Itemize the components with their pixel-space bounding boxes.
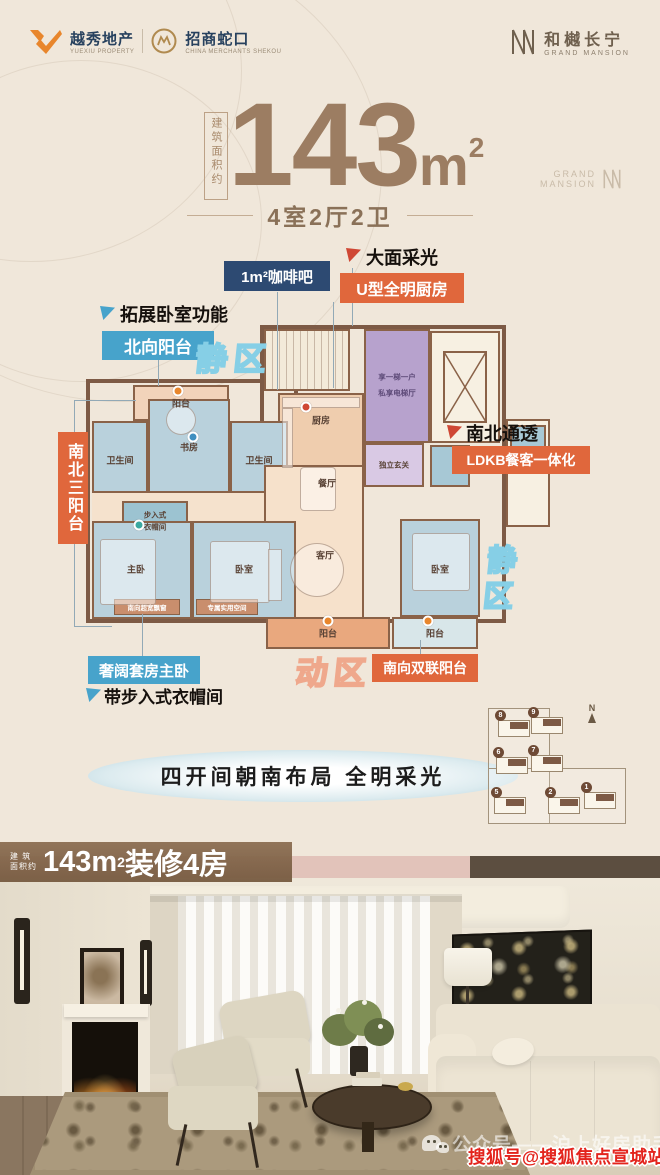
room-label-foyer: 独立玄关 <box>379 460 409 471</box>
zone-quiet-right: 静区 <box>470 544 522 616</box>
callout-north-south: 南北通透 <box>466 420 538 446</box>
window-note-left: 南向超宽飘窗 <box>128 602 167 612</box>
room-label-closet-1: 步入式 <box>144 510 167 521</box>
room-label-balcony-br: 阳台 <box>426 627 444 640</box>
lamp-shade <box>444 948 492 986</box>
banner-prefix: 建 筑 面积约 <box>10 852 37 872</box>
leader-line <box>158 360 159 386</box>
building-1: 1 <box>584 792 616 809</box>
room-label-study: 书房 <box>180 441 198 454</box>
leader-line <box>74 400 75 434</box>
marker-dot <box>188 432 199 443</box>
building-number: 7 <box>528 745 539 756</box>
layout-line-left <box>187 215 253 216</box>
yuexiu-logo-icon <box>28 26 62 56</box>
building-9: 9 <box>531 717 563 734</box>
room-label-balcony-bc: 阳台 <box>319 627 337 640</box>
study-table <box>166 405 196 435</box>
cushion-seam <box>594 1061 595 1141</box>
room-label-bath-mid: 卫生间 <box>245 454 272 467</box>
callout-master-suite: 奢阔套房主卧 <box>88 656 200 684</box>
banner-suffix: 装修4房 <box>125 841 228 883</box>
layout-text: 4室2厅2卫 <box>267 198 392 232</box>
building-8: 8 <box>498 720 530 737</box>
building-6: 6 <box>496 757 528 774</box>
building-5: 5 <box>494 797 526 814</box>
room-label-elevator-1: 享一梯一户 <box>378 372 416 383</box>
leader-line <box>74 626 112 627</box>
leader-line <box>74 544 75 626</box>
leader-line <box>142 614 143 658</box>
slogan-text: 四开间朝南布局 全明采光 <box>161 761 446 791</box>
area-label-box: 建筑面积约 <box>204 112 228 200</box>
kitchen-counter <box>282 397 360 408</box>
building-number: 6 <box>493 747 504 758</box>
layout-line-right <box>407 215 473 216</box>
interior-photo: 公众号——沪上好房助手 搜狐号@搜狐焦点宣城站 <box>0 856 660 1175</box>
building-number: 2 <box>545 787 556 798</box>
hero-watermark-line2: MANSION <box>540 179 596 189</box>
callout-walk-in-closet: 带步入式衣帽间 <box>104 683 223 708</box>
banner-power: 2 <box>117 854 125 870</box>
room-label-master: 主卧 <box>127 563 145 576</box>
table-books <box>356 1072 380 1078</box>
marker-dot <box>423 616 434 627</box>
elevator-icon <box>443 351 487 423</box>
slogan-oval: 四开间朝南布局 全明采光 <box>88 750 518 802</box>
callout-big-light: 大面采光 <box>366 244 438 270</box>
marker-dot <box>323 616 334 627</box>
room-label-living: 客厅 <box>316 549 334 562</box>
fireplace-mantel <box>64 1004 148 1017</box>
building-2: 2 <box>548 797 580 814</box>
room-label-bedroom-left: 卧室 <box>235 563 253 576</box>
building-roof <box>596 794 614 801</box>
plant-flower <box>336 1008 341 1013</box>
callout-u-kitchen: U型全明厨房 <box>340 273 464 303</box>
area-value: 143m2 <box>228 86 484 204</box>
room-label-closet-2: 衣帽间 <box>144 522 167 533</box>
building-7: 7 <box>531 755 563 772</box>
compass-north: N <box>588 703 596 723</box>
drape-left <box>148 896 178 1074</box>
leader-line <box>277 292 278 390</box>
room-label-kitchen: 厨房 <box>312 414 330 427</box>
sconce-light <box>20 930 24 990</box>
callout-coffee-bar: 1m²咖啡吧 <box>224 261 330 291</box>
area-power: 2 <box>469 132 485 163</box>
north-arrow-icon <box>588 713 596 723</box>
framed-picture <box>80 948 124 1010</box>
banner-prefix-line1: 建 筑 <box>10 852 37 862</box>
hero-watermark: GRAND MANSION <box>540 168 622 190</box>
cmsk-sub: CHINA MERCHANTS SHEKOU <box>185 49 281 55</box>
cushion-seam <box>530 1061 531 1141</box>
building-roof <box>560 799 578 806</box>
plant-flower <box>362 1000 367 1005</box>
table-pedestal <box>362 1122 374 1152</box>
building-number: 1 <box>581 782 592 793</box>
room-label-elevator-2: 私享电梯厅 <box>378 388 416 399</box>
picture-art <box>84 952 120 1006</box>
callout-expand-bedroom: 拓展卧室功能 <box>120 301 228 327</box>
header-left-logos: 越秀地产 YUEXIU PROPERTY 招商蛇口 CHINA MERCHANT… <box>28 26 281 56</box>
wechat-icon <box>422 1134 452 1158</box>
wechat-bubble-small <box>436 1142 449 1153</box>
window-note-right: 专属实用空间 <box>208 602 247 612</box>
building-number: 5 <box>491 787 502 798</box>
building-roof <box>508 759 526 766</box>
hero-watermark-line1: GRAND <box>540 169 596 179</box>
callout-south-balconies: 南向双联阳台 <box>372 654 478 682</box>
hero-watermark-text: GRAND MANSION <box>540 169 596 189</box>
header-brand-logo: 和樾长宁 GRAND MANSION <box>510 26 630 57</box>
area-unit: m <box>419 134 469 197</box>
flag-icon <box>86 688 101 702</box>
plant-leaves <box>364 1018 394 1046</box>
marker-dot <box>134 520 145 531</box>
photo-top-shadow <box>470 856 660 878</box>
brand-sub: GRAND MANSION <box>544 50 630 57</box>
leader-line <box>333 302 334 388</box>
sconce-light <box>144 950 147 994</box>
building-roof <box>506 799 524 806</box>
room-label-balcony-top: 阳台 <box>172 397 190 410</box>
yuexiu-name: 越秀地产 <box>70 28 134 49</box>
room-label-bath-left: 卫生间 <box>106 454 133 467</box>
zone-quiet-top: 静区 <box>194 334 275 380</box>
wall-sconce-left <box>14 918 30 1004</box>
armchair-seat-front <box>168 1086 258 1130</box>
yuexiu-sub: YUEXIU PROPERTY <box>70 49 134 55</box>
logo-divider <box>142 29 143 53</box>
marker-dot <box>173 386 184 397</box>
building-number: 8 <box>495 710 506 721</box>
grand-mansion-icon <box>510 28 536 56</box>
brand-name: 和樾长宁 <box>544 26 630 50</box>
callout-ldkb: LDKB餐客一体化 <box>452 446 590 474</box>
brand-text: 和樾长宁 GRAND MANSION <box>544 26 630 57</box>
curtain-rail-shadow <box>148 894 462 902</box>
table-bowl <box>398 1082 413 1091</box>
cmsk-logo-icon <box>151 28 177 54</box>
room-label-bedroom-right: 卧室 <box>431 563 449 576</box>
building-roof <box>510 722 528 729</box>
cmsk-logo-text: 招商蛇口 CHINA MERCHANTS SHEKOU <box>185 28 281 55</box>
compass-label: N <box>588 703 596 713</box>
zone-active: 动区 <box>294 648 375 694</box>
sohu-watermark: 搜狐号@搜狐焦点宣城站 <box>468 1144 660 1169</box>
kitchen-counter-side <box>282 408 293 468</box>
yuexiu-logo-text: 越秀地产 YUEXIU PROPERTY <box>70 28 134 55</box>
marker-dot <box>301 402 312 413</box>
table-books <box>352 1078 382 1086</box>
building-roof <box>543 719 561 726</box>
callout-three-balconies: 南北三阳台 <box>58 432 88 544</box>
layout-row: 4室2厅2卫 <box>0 198 660 232</box>
plant-flower <box>378 1024 383 1029</box>
banner-number: 143m <box>43 846 117 879</box>
room-label-dining: 餐厅 <box>318 477 336 490</box>
building-number: 9 <box>528 707 539 718</box>
banner-prefix-line2: 面积约 <box>10 862 37 872</box>
poster-page: 越秀地产 YUEXIU PROPERTY 招商蛇口 CHINA MERCHANT… <box>0 0 660 1175</box>
leader-line <box>74 400 136 401</box>
section-banner: 建 筑 面积约 143m2装修4房 <box>0 842 292 882</box>
cmsk-name: 招商蛇口 <box>185 28 281 49</box>
sofa-plan <box>268 549 282 601</box>
area-number: 143 <box>228 79 419 211</box>
hero-watermark-icon <box>602 168 622 190</box>
wall-sconce-right <box>140 940 152 1006</box>
building-roof <box>543 757 561 764</box>
elevator-hall <box>364 329 430 443</box>
